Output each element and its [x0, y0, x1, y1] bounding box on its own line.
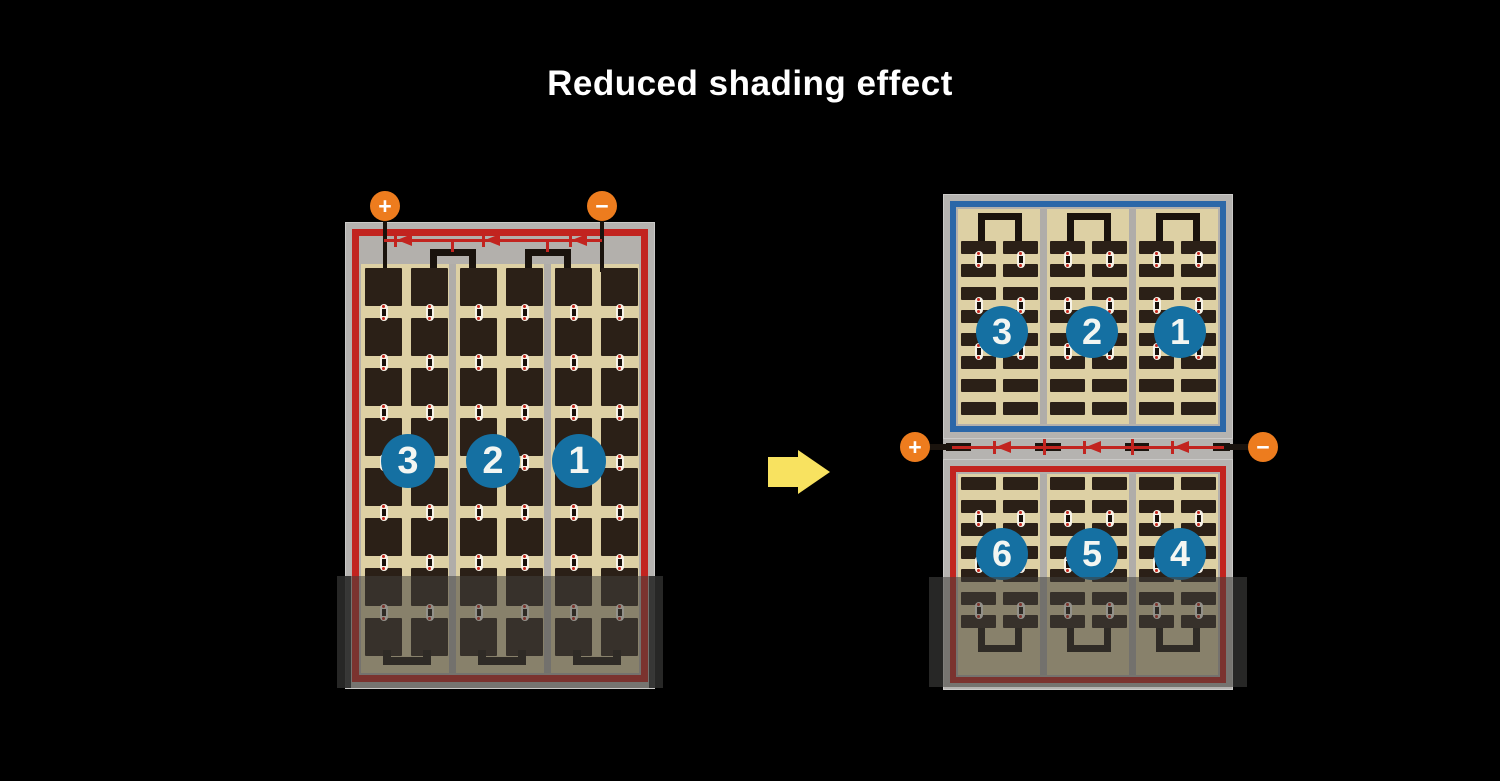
diode-tap-wire — [1043, 439, 1046, 455]
section-number-badge: 5 — [1066, 528, 1118, 580]
shading-overlay — [929, 577, 1247, 687]
dot-bar — [977, 348, 981, 355]
solar-cell — [961, 379, 996, 392]
plus-terminal: + — [900, 432, 930, 462]
minus-terminal: − — [1248, 432, 1278, 462]
section-number-badge: 1 — [1154, 306, 1206, 358]
diagram-canvas: Reduced shading effect 321+− 321654+− — [0, 0, 1500, 781]
section-number-badge: 3 — [976, 306, 1028, 358]
cell-interconnect-dot — [1064, 297, 1072, 314]
cell-interconnect-dot — [1195, 510, 1203, 527]
right-module: 321654+− — [0, 0, 1500, 781]
solar-cell — [1139, 379, 1174, 392]
cell-interconnect-dot — [975, 297, 983, 314]
solar-cell — [961, 402, 996, 415]
shading-overlay-edge — [929, 577, 943, 687]
cell-interconnect-dot — [1195, 251, 1203, 268]
shading-overlay-edge — [1233, 577, 1247, 687]
solar-cell — [1092, 402, 1127, 415]
string-jumper-leg — [1156, 213, 1163, 241]
solar-cell — [1139, 402, 1174, 415]
bypass-diode-icon — [1086, 441, 1101, 453]
dot-bar — [1197, 302, 1201, 309]
dot-bar — [1155, 348, 1159, 355]
cell-interconnect-dot — [1064, 510, 1072, 527]
dot-bar — [1066, 256, 1070, 263]
dot-bar — [1155, 302, 1159, 309]
cell-interconnect-dot — [1017, 510, 1025, 527]
cell-interconnect-dot — [1106, 510, 1114, 527]
solar-cell — [1003, 379, 1038, 392]
cell-interconnect-dot — [1153, 251, 1161, 268]
solar-cell — [961, 477, 996, 490]
section-number-badge: 6 — [976, 528, 1028, 580]
solar-cell — [1092, 379, 1127, 392]
dot-bar — [1108, 302, 1112, 309]
cell-interconnect-dot — [975, 510, 983, 527]
solar-cell — [1050, 477, 1085, 490]
dot-bar — [1155, 256, 1159, 263]
solar-cell — [1181, 402, 1216, 415]
string-jumper-leg — [978, 213, 985, 241]
dot-bar — [1155, 515, 1159, 522]
solar-cell — [1003, 477, 1038, 490]
section-number-badge: 4 — [1154, 528, 1206, 580]
string-jumper-leg — [1067, 213, 1074, 241]
dot-bar — [1019, 302, 1023, 309]
dot-bar — [1066, 348, 1070, 355]
string-jumper-leg — [1193, 213, 1200, 241]
solar-cell — [1003, 402, 1038, 415]
cell-interconnect-dot — [975, 251, 983, 268]
terminal-wire — [1226, 444, 1250, 450]
solar-cell — [1050, 402, 1085, 415]
dot-bar — [1019, 256, 1023, 263]
dot-bar — [1019, 515, 1023, 522]
dot-bar — [1108, 515, 1112, 522]
diode-tap-wire — [1131, 439, 1134, 455]
bypass-diode-icon — [996, 441, 1011, 453]
cell-interconnect-dot — [1064, 251, 1072, 268]
dot-bar — [1197, 515, 1201, 522]
solar-cell — [1181, 379, 1216, 392]
string-jumper-leg — [1104, 213, 1111, 241]
cell-interconnect-dot — [1153, 297, 1161, 314]
dot-bar — [977, 515, 981, 522]
dot-bar — [1066, 302, 1070, 309]
solar-cell — [1050, 379, 1085, 392]
cell-interconnect-dot — [1106, 251, 1114, 268]
string-jumper-leg — [1015, 213, 1022, 241]
solar-cell — [1092, 477, 1127, 490]
section-number-badge: 2 — [1066, 306, 1118, 358]
solar-cell — [1139, 477, 1174, 490]
dot-bar — [1197, 256, 1201, 263]
dot-bar — [977, 256, 981, 263]
solar-cell — [1181, 477, 1216, 490]
dot-bar — [1066, 515, 1070, 522]
dot-bar — [1108, 256, 1112, 263]
cell-interconnect-dot — [1017, 251, 1025, 268]
bypass-diode-icon — [1174, 441, 1189, 453]
terminal-wire — [928, 444, 950, 450]
cell-interconnect-dot — [1153, 510, 1161, 527]
dot-bar — [977, 302, 981, 309]
